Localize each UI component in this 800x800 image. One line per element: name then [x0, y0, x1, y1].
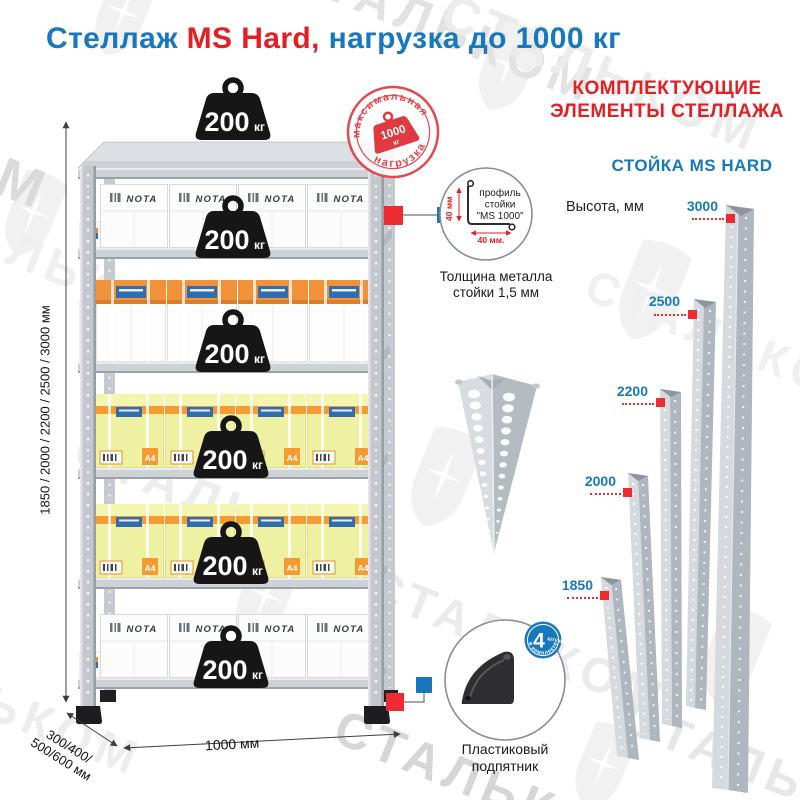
box-a4-label: A4 — [287, 563, 298, 573]
svg-text:200: 200 — [204, 225, 249, 255]
profile-caption: Толщина металла стойки 1,5 мм — [428, 269, 564, 301]
callout-red-marker — [384, 206, 403, 225]
stand-label-3000: 3000 — [670, 198, 718, 214]
title-part-blue-2: нагрузка до 1000 кг — [329, 22, 621, 55]
weight-200kg: 200 кг — [196, 80, 271, 140]
svg-text:кг: кг — [254, 238, 265, 252]
components-title: КОМПЛЕКТУЮЩИЕ ЭЛЕМЕНТЫ СТЕЛЛАЖА — [538, 77, 796, 123]
svg-text:200: 200 — [204, 339, 249, 369]
profile-text-1: профиль — [479, 187, 520, 199]
box-a4-label: A4 — [358, 453, 369, 463]
title-part-red: MS Hard, — [187, 22, 320, 55]
title-part-blue-1: Стеллаж — [46, 22, 178, 55]
stand-leader — [622, 403, 654, 405]
components-subtitle: СТОЙКА MS HARD — [592, 156, 792, 176]
stand-post-1850 — [601, 577, 639, 760]
infographic-canvas: СТАЛЬКОМ СТАЛЬКОМ СТАЛЬКОМ СТАЛЬКОМ СТАЛ… — [0, 0, 800, 800]
weight-unit: кг — [254, 120, 265, 134]
box-brand-label: NOTA — [333, 624, 364, 635]
callout-blue-marker — [416, 677, 432, 693]
stand-label-1850: 1850 — [545, 577, 593, 593]
shelving-rack: NOTA NOTA NOTA NOTA A4 A4 A4 A4 — [76, 80, 398, 724]
stand-label-2000: 2000 — [568, 473, 616, 489]
plastic-foot-detail: 4 штуки в комплекте — [445, 620, 565, 740]
height-axis-label: Высота, мм — [566, 199, 644, 215]
profile-detail: 40 мм 40 мм. профиль стойки "MS 1000" — [440, 168, 532, 260]
stand-post-3000 — [712, 205, 754, 793]
svg-text:кг: кг — [254, 352, 265, 366]
box-brand-label: NOTA — [126, 624, 157, 635]
box-brand-label: NOTA — [333, 194, 364, 205]
stand-marker — [623, 488, 632, 497]
profile-caption-line1: Толщина металла — [428, 269, 564, 285]
page-title: Стеллаж MS Hard, нагрузка до 1000 кг — [46, 22, 621, 56]
weight-value: 200 — [204, 107, 249, 137]
box-brand-label: NOTA — [195, 194, 226, 205]
svg-text:200: 200 — [202, 551, 247, 581]
svg-text:кг: кг — [252, 668, 263, 682]
rack-front-post-right — [368, 166, 384, 706]
stand-marker — [656, 398, 665, 407]
rack-heights-dimension: 1850 / 2000 / 2200 / 2500 / 3000 мм — [38, 305, 53, 514]
stand-marker — [688, 310, 697, 319]
profile-dim-vertical: 40 мм — [444, 197, 454, 221]
stand-marker — [600, 591, 609, 600]
profile-text-2: стойки — [485, 200, 516, 211]
profile-text-3: "MS 1000" — [476, 211, 524, 222]
stand-marker — [726, 214, 735, 223]
svg-text:200: 200 — [202, 655, 247, 685]
post-perspective-view — [455, 374, 540, 553]
svg-text:кг: кг — [252, 564, 263, 578]
foot-caption-line2: подпятник — [438, 758, 572, 775]
stand-post-2500 — [686, 299, 716, 710]
stand-leader — [567, 597, 598, 599]
foot-caption-line1: Пластиковый — [438, 741, 572, 758]
profile-caption-line2: стойки 1,5 мм — [428, 285, 564, 301]
stand-leader — [654, 314, 686, 316]
stand-label-2200: 2200 — [600, 383, 648, 399]
box-a4-label: A4 — [287, 453, 298, 463]
components-title-line2: ЭЛЕМЕНТЫ СТЕЛЛАЖА — [538, 100, 796, 123]
box-a4-label: A4 — [145, 453, 156, 463]
box-brand-label: NOTA — [264, 624, 295, 635]
stand-leader — [692, 218, 724, 220]
box-a4-label: A4 — [358, 563, 369, 573]
components-title-line1: КОМПЛЕКТУЮЩИЕ — [538, 77, 796, 100]
profile-dim-horizontal: 40 мм. — [478, 235, 505, 245]
stand-leader — [590, 493, 621, 495]
svg-text:200: 200 — [202, 445, 247, 475]
box-brand-label: NOTA — [126, 194, 157, 205]
box-a4-label: A4 — [145, 563, 156, 573]
foot-caption: Пластиковый подпятник — [438, 741, 572, 775]
callout-red-marker — [386, 693, 404, 711]
stand-label-2500: 2500 — [632, 293, 680, 309]
stand-post-2200 — [660, 389, 682, 728]
rack-width-dimension: 1000 мм — [205, 735, 260, 754]
svg-text:кг: кг — [252, 458, 263, 472]
rack-front-post-left — [80, 166, 96, 706]
box-brand-label: NOTA — [264, 194, 295, 205]
